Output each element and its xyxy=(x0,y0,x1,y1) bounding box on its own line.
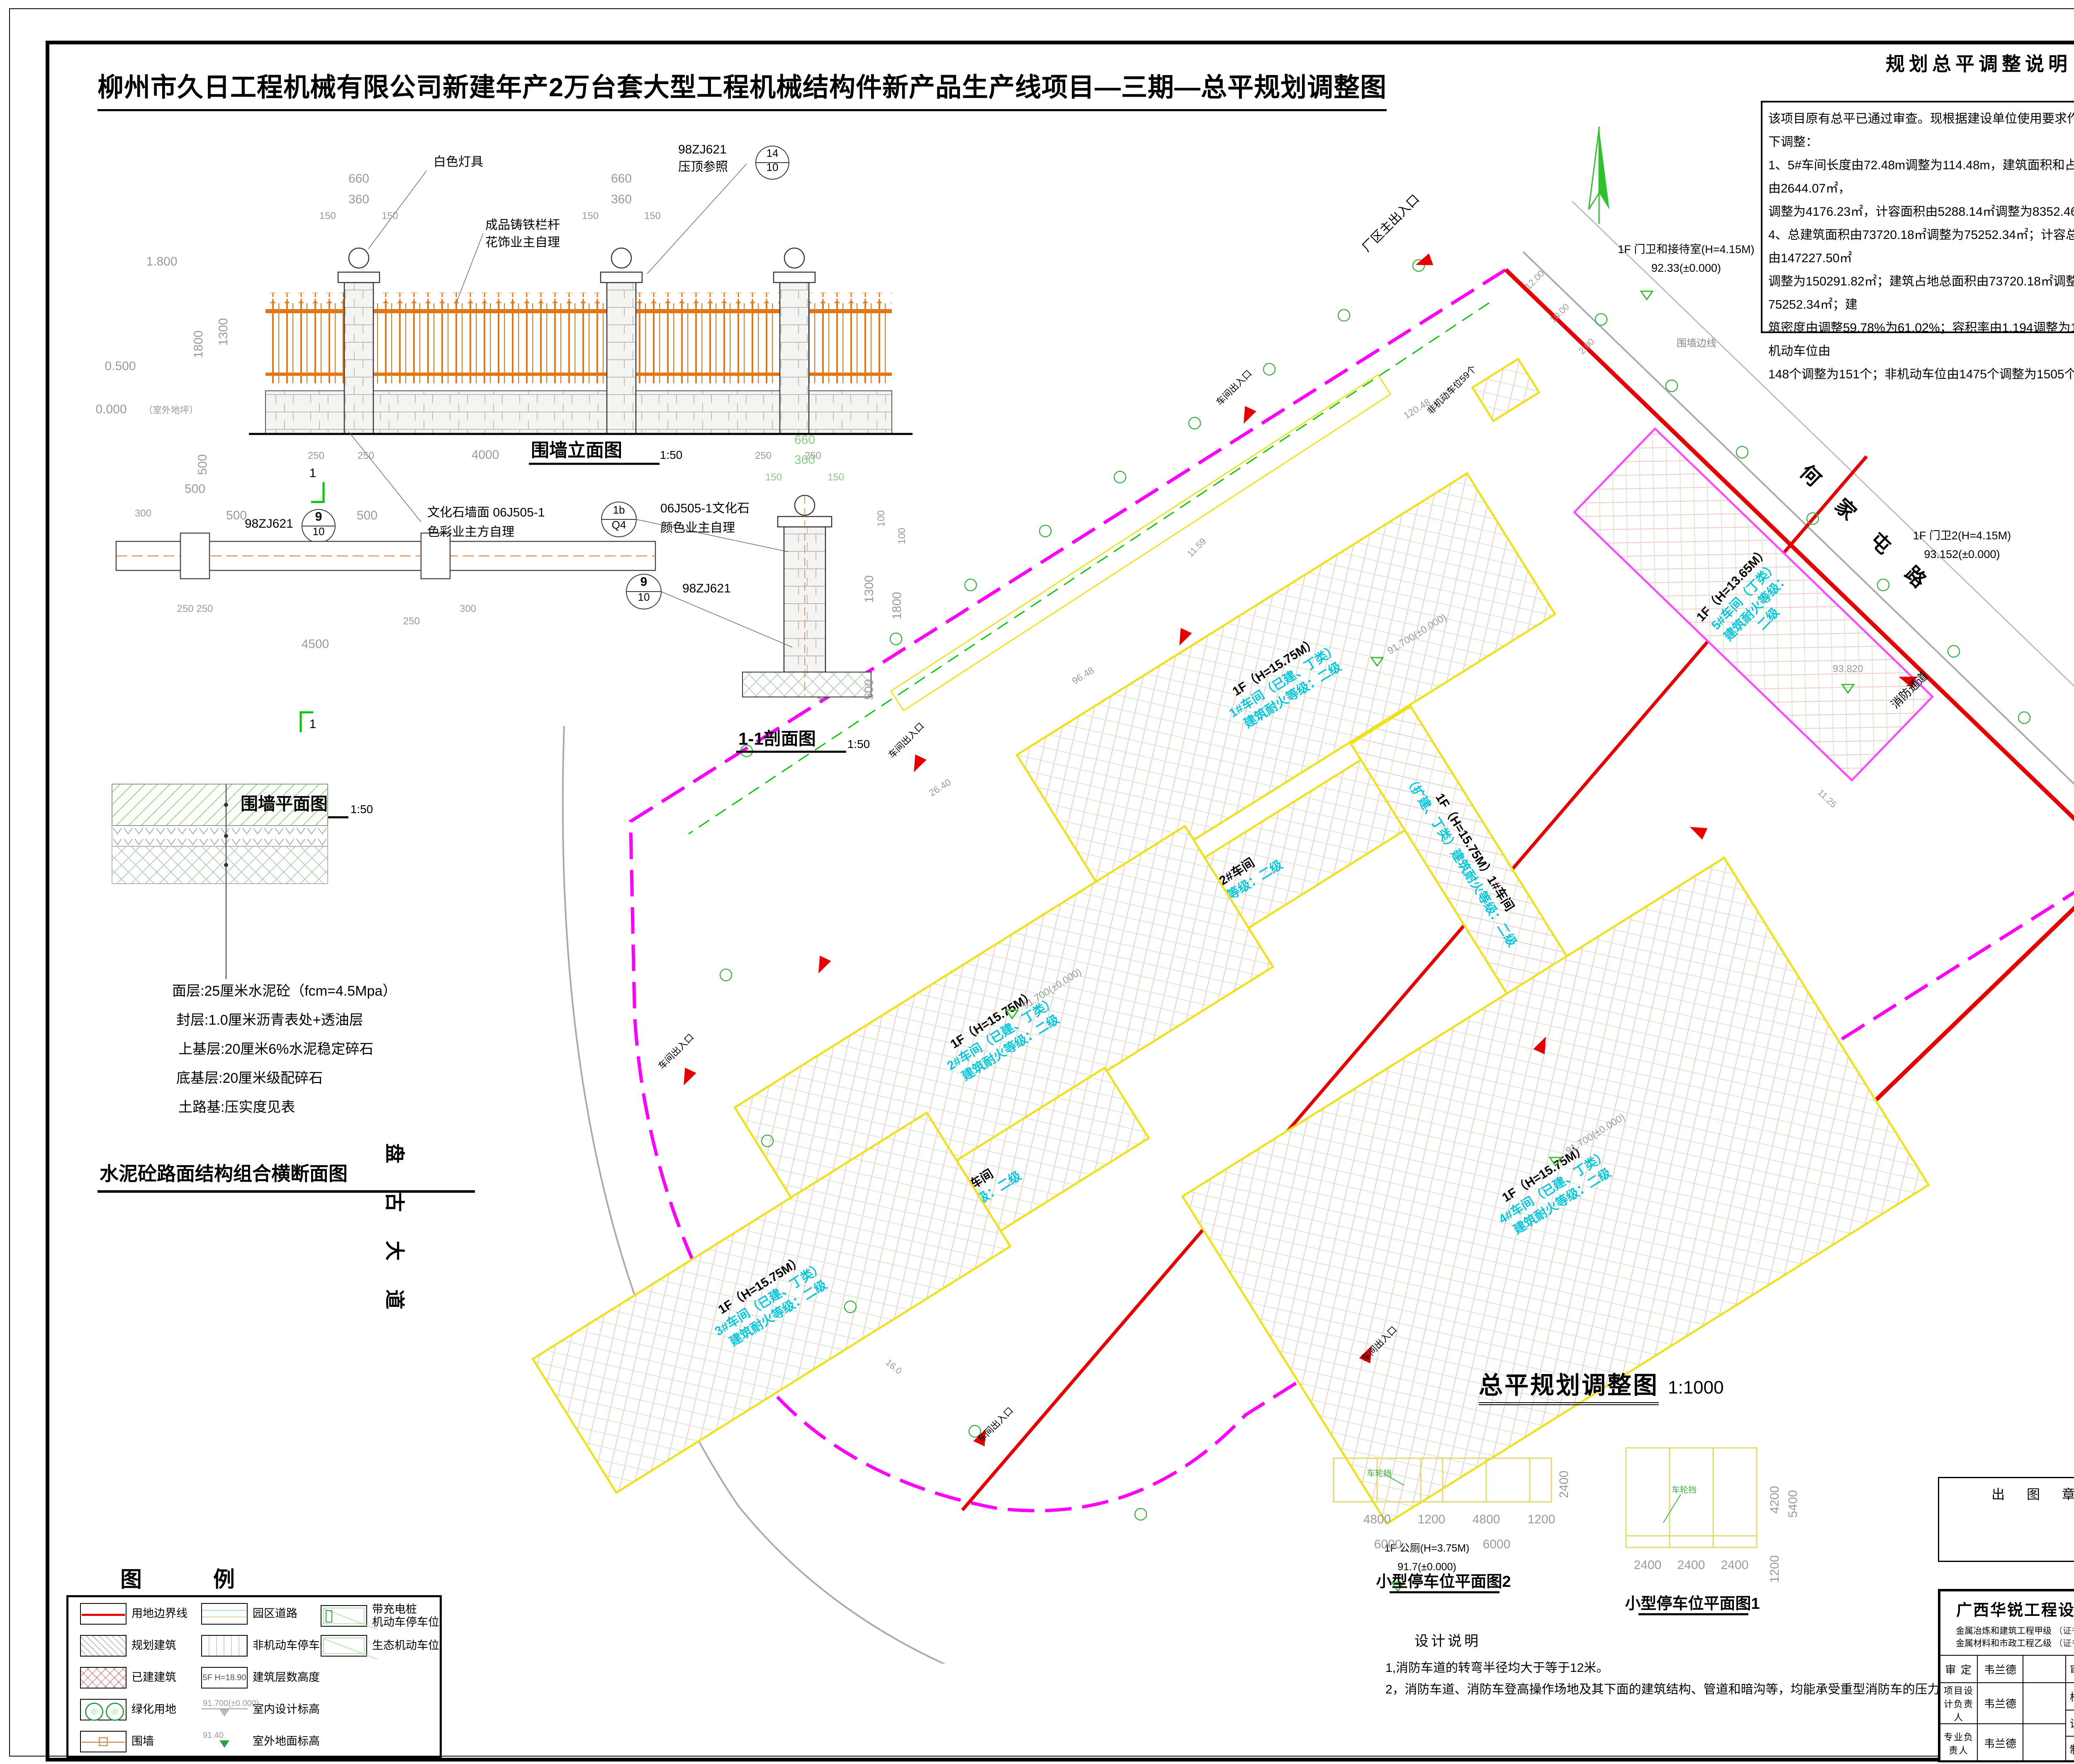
charging-parking-icon xyxy=(321,1605,367,1627)
fence-wall-icon xyxy=(80,1731,127,1752)
legend-label: 室外地面标高 xyxy=(253,1735,320,1748)
parking-annotation: 小型停车位平面图2 xyxy=(1376,1573,1511,1591)
detail-annotation: 压顶参照 xyxy=(678,160,728,174)
parking-annotation: 2400 xyxy=(1634,1558,1662,1572)
site-annotation: 92.33(±0.000) xyxy=(1651,262,1721,274)
pm-label: 项目设计负责人 xyxy=(1940,1683,1977,1724)
legend-label: 建筑层数高度 xyxy=(253,1671,320,1684)
detail-annotation: 花饰业主自理 xyxy=(485,236,560,249)
detail-annotation: 98ZJ621 xyxy=(682,582,731,595)
detail-annotation: 100 xyxy=(876,510,887,527)
detail-annotation: 1.800 xyxy=(146,255,177,268)
bike-parking-icon xyxy=(201,1635,248,1657)
legend-label: 带充电桩 机动车停车位 xyxy=(372,1603,439,1629)
parking-annotation: 5400 xyxy=(1786,1490,1800,1518)
detail-annotation: 10 xyxy=(638,591,650,603)
detail-annotation: 10 xyxy=(767,161,779,173)
section-1-1-drawing xyxy=(601,495,871,752)
floor-height-icon: 5F H=18.90 xyxy=(201,1667,248,1688)
zhuanye-value: 韦兰德 xyxy=(1977,1724,2023,1762)
drawing-sheet: 柳州市久日工程机械有限公司新建年产2万台套大型工程机械结构件新产品生产线项目—三… xyxy=(0,0,2074,1764)
detail-annotation: 1 xyxy=(309,717,316,731)
detail-annotation: 1 xyxy=(309,466,316,480)
building-5: 1F（H=13.65M）5#车间（丁类）建筑耐火等级：二级 xyxy=(1574,429,1932,780)
outdoor-elevation-icon: 91.40 xyxy=(201,1731,248,1752)
legend-label: 园区道路 xyxy=(253,1607,297,1620)
site-annotation: 车间出入口 xyxy=(976,1405,1015,1445)
site-annotation: 厂区主出入口 xyxy=(1360,192,1422,255)
design-firm-name: 广西华锐工程设计有限公司 xyxy=(1956,1597,2074,1620)
legend-item: 生态机动车位 xyxy=(321,1635,439,1657)
note-line: 1、5#车间长度由72.48m调整为114.48m，建筑面积和占地面积由2644… xyxy=(1768,154,2074,200)
plot-stamp-label: 出 图 章 xyxy=(1939,1484,2074,1503)
tree-icon xyxy=(1877,579,1889,591)
detail-annotation: 1b xyxy=(613,504,625,516)
note-line: 调整为150291.82㎡；建筑占地总面积由73720.18㎡调整为75252.… xyxy=(1768,270,2074,317)
tree-icon xyxy=(965,579,976,591)
detail-annotation: 660 xyxy=(348,172,369,185)
note-line: 调整为4176.23㎡，计容面积由5288.14㎡调整为8352.46㎡。 xyxy=(1768,200,2074,224)
legend-item: 5F H=18.90建筑层数高度 xyxy=(201,1667,320,1688)
detail-annotation: 500 xyxy=(357,509,377,522)
detail-annotation: 360 xyxy=(348,192,369,206)
detail-annotation: 14 xyxy=(767,147,779,159)
blank-cell xyxy=(2023,1655,2066,1683)
legend-label: 绿化用地 xyxy=(131,1703,176,1716)
detail-annotation: 1:50 xyxy=(660,448,683,461)
detail-annotation: 1-1剖面图 xyxy=(738,729,816,748)
tree-icon xyxy=(1666,380,1677,392)
shending-value: 韦兰德 xyxy=(1977,1655,2023,1683)
entrance-arrow-icon xyxy=(1687,821,1707,840)
legend-item: 带充电桩 机动车停车位 xyxy=(321,1603,439,1629)
legend-label: 用地边界线 xyxy=(131,1607,187,1620)
detail-annotation: 98ZJ621 xyxy=(245,517,293,531)
detail-annotation: 9 xyxy=(315,510,322,524)
parking-annotation: 车轮挡 xyxy=(1672,1485,1697,1495)
detail-annotation: 150 xyxy=(828,472,844,483)
detail-annotation: 660 xyxy=(611,172,632,185)
legend-label: 围墙 xyxy=(131,1735,154,1748)
site-annotation: 93.820 xyxy=(1833,663,1863,675)
tree-icon xyxy=(1595,314,1607,325)
parking-annotation: 1200 xyxy=(1418,1513,1446,1526)
site-annotation: 围墙边线 xyxy=(1677,338,1716,349)
legend-item: 91.700(±0.000)室内设计标高 xyxy=(201,1699,320,1720)
detail-annotation: 150 xyxy=(582,210,599,222)
legend-label: 规划建筑 xyxy=(131,1639,176,1652)
parking-annotation: 6000 xyxy=(1483,1537,1511,1551)
detail-annotation: 白色灯具 xyxy=(433,155,483,169)
detail-annotation: 10 xyxy=(313,525,325,538)
site-annotation: 1F 门卫和接待室(H=4.15M) xyxy=(1618,243,1754,256)
parking-annotation: 1200 xyxy=(1528,1513,1555,1526)
site-annotation: 96.48 xyxy=(1070,665,1096,687)
parking-annotation: 4800 xyxy=(1363,1513,1391,1526)
zhuanye-label: 专业负责人 xyxy=(1940,1724,1977,1762)
detail-annotation: 98ZJ621 xyxy=(678,143,727,156)
parking-annotation: 小型停车位平面图1 xyxy=(1625,1595,1760,1613)
boundary-line-icon xyxy=(80,1603,127,1625)
design-firm-cell: 广西华锐工程设计有限公司 金属冶炼和建筑工程甲级 （证书编号: A1450024… xyxy=(1940,1591,2074,1655)
detail-annotation: 1:50 xyxy=(847,738,870,750)
detail-annotation: 9 xyxy=(640,575,648,589)
eco-parking-icon xyxy=(321,1635,367,1657)
detail-annotation: 1:50 xyxy=(351,803,373,816)
tree-icon xyxy=(1736,446,1748,458)
site-annotation: 11.59 xyxy=(1185,536,1208,559)
detail-annotation: 4500 xyxy=(302,637,329,651)
adjust-notes-box: 该项目原有总平已通过审查。现根据建设单位使用要求作出如下调整：1、5#车间长度由… xyxy=(1761,101,2074,333)
note-line: 148个调整为151个；非机动车位由1475个调整为1505个。 xyxy=(1768,363,2074,386)
blank-cell xyxy=(2023,1683,2066,1724)
detail-annotation: 360 xyxy=(611,192,632,206)
detail-annotation: 文化石墙面 06J505-1 xyxy=(427,506,545,519)
parking-plan-2 xyxy=(1334,1458,1551,1502)
parking-annotation: 2400 xyxy=(1557,1471,1571,1498)
detail-annotation: 500 xyxy=(185,482,205,496)
fence-plan-drawing xyxy=(116,482,655,817)
elevation-marker-icon xyxy=(1641,291,1653,300)
building-pd xyxy=(1473,359,1539,421)
adjust-notes-title: 规划总平调整说明 xyxy=(1833,49,2074,76)
detail-annotation: 500 xyxy=(862,679,876,700)
parking-annotation: 2400 xyxy=(1721,1558,1749,1572)
entrance-arrow-icon xyxy=(1174,628,1192,648)
legend-label: 室内设计标高 xyxy=(253,1703,320,1716)
building-1e: 1F（H=15.75M）1#车间（扩建、丁类）建筑耐火等级：二级 xyxy=(1351,707,1578,1011)
legend-item: 91.40室外地面标高 xyxy=(201,1731,320,1752)
detail-annotation: 300 xyxy=(460,603,476,614)
legend-label: 非机动车停车位 xyxy=(253,1639,331,1652)
existing-building-icon xyxy=(80,1667,127,1688)
parking-annotation: 4800 xyxy=(1473,1513,1500,1526)
detail-annotation: 围墙立面图 xyxy=(531,440,622,460)
shending-label: 审 定 xyxy=(1940,1655,1977,1683)
detail-annotation: 300 xyxy=(135,508,151,519)
park-road-icon xyxy=(201,1603,248,1625)
detail-annotation: 色彩业主方自理 xyxy=(427,525,514,539)
site-annotation: 车间出入口 xyxy=(1214,368,1254,407)
detail-annotation: 成品铸铁栏杆 xyxy=(485,218,560,232)
sheji-label: 设 计 xyxy=(2066,1710,2074,1736)
detail-annotation: 06J505-1文化石 xyxy=(660,502,750,515)
firm-credential-1: 金属冶炼和建筑工程甲级 （证书编号: A145002406） xyxy=(1956,1624,2074,1637)
legend-item: 绿化用地 xyxy=(80,1699,176,1720)
site-plan-title: 总平规划调整图1:1000 xyxy=(1479,1366,1724,1401)
detail-annotation: 150 xyxy=(382,210,398,222)
shenhe-label: 审 核 xyxy=(2066,1655,2074,1683)
legend-item: 园区道路 xyxy=(201,1603,297,1625)
tree-icon xyxy=(1114,471,1126,483)
detail-annotation: 360 xyxy=(794,453,815,467)
tree-icon xyxy=(1039,525,1051,537)
plot-stamp-box: 出 图 章 xyxy=(1938,1477,2074,1562)
detail-annotation: （室外地坪） xyxy=(144,405,198,415)
legend-label: 生态机动车位 xyxy=(372,1639,439,1652)
detail-annotation: 150 xyxy=(644,210,661,222)
detail-annotation: 150 xyxy=(765,472,782,483)
parking-annotation: 6000 xyxy=(1374,1537,1402,1551)
parking-annotation: 1200 xyxy=(1768,1555,1782,1583)
site-annotation: 1F 门卫2(H=4.15M) xyxy=(1913,529,2011,542)
detail-annotation: 250 250 xyxy=(177,603,213,614)
detail-annotation: 250 xyxy=(403,616,420,627)
parking-plan-1 xyxy=(1626,1448,1757,1547)
tree-icon xyxy=(1135,1508,1147,1520)
legend-item: 规划建筑 xyxy=(80,1635,176,1657)
legend-item: 用地边界线 xyxy=(80,1603,187,1625)
detail-annotation: 250 xyxy=(308,450,324,461)
detail-annotation: 水泥砼路面结构组合横断面图 xyxy=(100,1163,348,1184)
parking-annotation: 车轮挡 xyxy=(1367,1469,1392,1478)
note-line: 4、总建筑面积由73720.18㎡调整为75252.34㎡；计容总面积由1472… xyxy=(1768,224,2074,270)
site-annotation: 非机动车位59个 xyxy=(1425,363,1478,417)
green-space-icon xyxy=(80,1699,127,1720)
detail-annotation: 围墙平面图 xyxy=(241,794,328,814)
detail-annotation: 1300 xyxy=(217,318,230,346)
detail-annotation: 颜色业主自理 xyxy=(660,521,735,535)
tree-icon xyxy=(1948,646,1960,657)
legend-title: 图 例 xyxy=(120,1562,260,1593)
detail-annotation: Q4 xyxy=(612,519,626,531)
detail-annotation: 1800 xyxy=(890,592,904,620)
detail-annotation: 面层:25厘米水泥砼（fcm=4.5Mpa） xyxy=(172,983,397,999)
legend-label: 已建建筑 xyxy=(131,1671,176,1684)
detail-annotation: 0.500 xyxy=(105,359,136,373)
detail-annotation: 4000 xyxy=(472,448,499,462)
detail-annotation: 100 xyxy=(896,528,908,544)
detail-annotation: 150 xyxy=(319,210,336,222)
detail-drawings: 660360150150660360150150白色灯具98ZJ621压顶参照1… xyxy=(58,124,933,1328)
detail-annotation: 500 xyxy=(196,454,209,475)
zhitu-label: 制 图 xyxy=(2066,1736,2074,1762)
legend-item: 非机动车停车位 xyxy=(201,1635,331,1657)
entrance-arrow-icon xyxy=(1238,406,1256,426)
parking-annotation: 4200 xyxy=(1768,1486,1782,1514)
site-annotation: 11.25 xyxy=(1816,787,1839,810)
site-annotation: 93.152(±0.000) xyxy=(1924,548,2000,560)
firm-credential-2: 金属材料和市政工程乙级 （证书编号: A245002403） xyxy=(1956,1637,2074,1649)
legend-item: 围墙 xyxy=(80,1731,154,1752)
detail-annotation: 封层:1.0厘米沥青表处+透油层 xyxy=(176,1012,363,1028)
note-line: 该项目原有总平已通过审查。现根据建设单位使用要求作出如下调整： xyxy=(1768,107,2074,154)
detail-annotation: 上基层:20厘米6%水泥稳定碎石 xyxy=(178,1041,373,1057)
tree-icon xyxy=(1189,417,1200,429)
legend-item: 已建建筑 xyxy=(80,1667,176,1688)
title-block: 广西华锐工程设计有限公司 金属冶炼和建筑工程甲级 （证书编号: A1450024… xyxy=(1938,1589,2074,1762)
indoor-elevation-icon: 91.700(±0.000) xyxy=(201,1699,248,1720)
north-arrow-icon xyxy=(1589,127,1609,224)
planned-building-icon xyxy=(80,1635,127,1657)
tree-icon xyxy=(2018,712,2030,724)
detail-annotation: 1800 xyxy=(192,331,205,358)
tree-icon xyxy=(1338,309,1350,321)
pm-value: 韦兰德 xyxy=(1977,1683,2023,1724)
detail-annotation: 250 xyxy=(358,450,374,461)
legend: 用地边界线园区道路带充电桩 机动车停车位规划建筑非机动车停车位生态机动车位已建建… xyxy=(66,1595,442,1758)
detail-annotation: 底基层:20厘米级配碎石 xyxy=(176,1070,323,1086)
detail-annotation: 1300 xyxy=(862,575,876,603)
detail-annotation: 250 xyxy=(755,450,772,461)
tree-icon xyxy=(1263,363,1275,375)
note-line: 筑密度由调整59.78%为61.02%；容积率由1.194调整为1.219。机动… xyxy=(1768,317,2074,363)
parking-annotation: 2400 xyxy=(1677,1558,1705,1572)
detail-annotation: 土路基:压实度见表 xyxy=(178,1099,295,1115)
site-annotation: 16.0 xyxy=(884,1357,904,1377)
detail-annotation: 500 xyxy=(226,509,247,522)
building-outline-pd xyxy=(1473,359,1539,421)
detail-annotation: 660 xyxy=(794,433,815,447)
xiaohe-label: 校 核 xyxy=(2066,1683,2074,1710)
blank-cell xyxy=(2023,1724,2066,1762)
detail-annotation: 0.000 xyxy=(95,402,127,416)
